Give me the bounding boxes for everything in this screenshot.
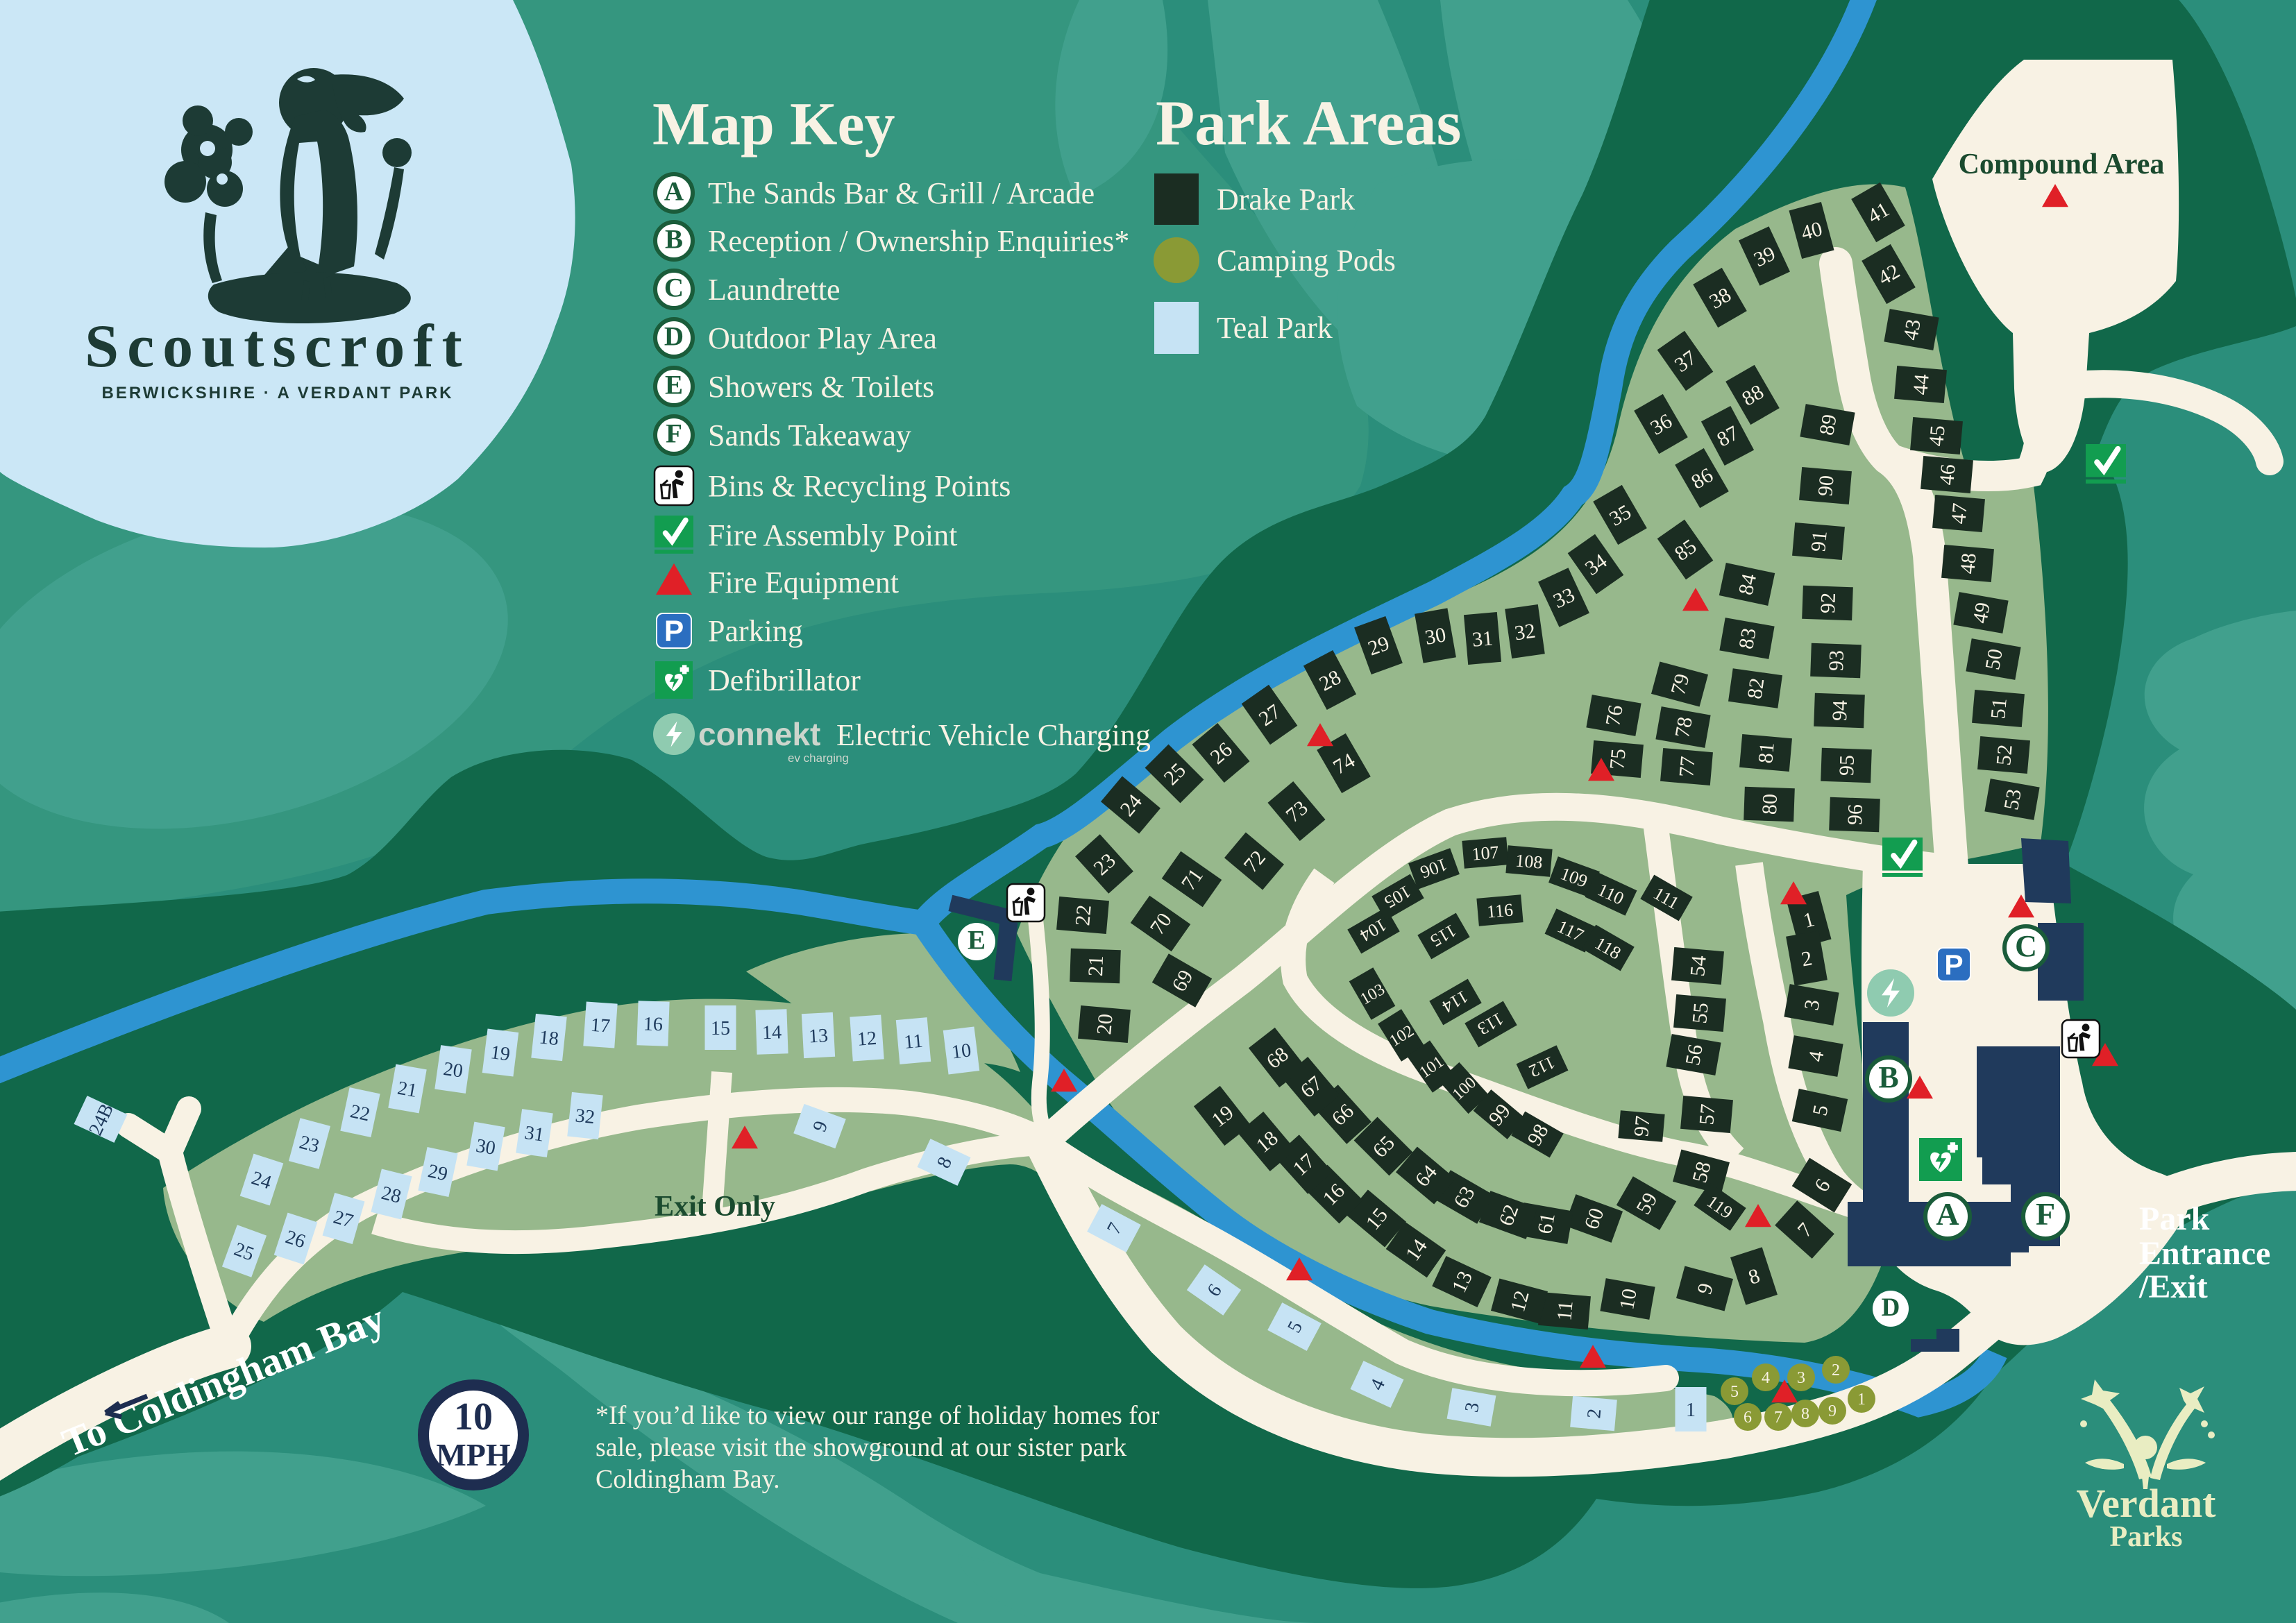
svg-text:46: 46: [1935, 464, 1959, 486]
svg-text:83: 83: [1734, 627, 1761, 651]
svg-text:51: 51: [1986, 697, 2011, 720]
svg-text:connekt: connekt: [698, 716, 820, 752]
svg-text:108: 108: [1514, 850, 1543, 872]
svg-text:5: 5: [1730, 1383, 1739, 1401]
svg-text:116: 116: [1486, 899, 1514, 921]
svg-text:30: 30: [1424, 623, 1448, 649]
svg-text:13: 13: [808, 1025, 829, 1047]
svg-text:11: 11: [1553, 1300, 1577, 1322]
svg-text:92: 92: [1816, 592, 1840, 613]
svg-text:2: 2: [1583, 1408, 1605, 1420]
svg-text:*If you’d like to view our ran: *If you’d like to view our range of holi…: [596, 1401, 1160, 1430]
svg-text:45: 45: [1925, 425, 1949, 448]
svg-text:E: E: [665, 370, 683, 400]
svg-text:32: 32: [574, 1105, 596, 1128]
svg-text:F: F: [2036, 1196, 2055, 1232]
svg-text:80: 80: [1758, 793, 1782, 815]
svg-text:Coldingham Bay.: Coldingham Bay.: [596, 1465, 780, 1494]
svg-text:Defibrillator: Defibrillator: [708, 663, 861, 697]
svg-text:12: 12: [856, 1028, 877, 1051]
svg-text:30: 30: [474, 1135, 497, 1159]
svg-text:Showers & Toilets: Showers & Toilets: [708, 370, 934, 404]
svg-text:91: 91: [1807, 530, 1831, 553]
svg-text:18: 18: [538, 1026, 559, 1050]
svg-text:50: 50: [1981, 647, 2007, 672]
svg-text:2: 2: [1832, 1361, 1840, 1379]
svg-text:10: 10: [454, 1395, 493, 1438]
svg-text:/Exit: /Exit: [2138, 1268, 2208, 1305]
svg-text:9: 9: [1828, 1402, 1837, 1420]
svg-text:20: 20: [1092, 1013, 1117, 1036]
svg-text:The Sands Bar & Grill / Arcade: The Sands Bar & Grill / Arcade: [708, 176, 1095, 210]
svg-text:D: D: [664, 321, 684, 351]
svg-text:48: 48: [1956, 552, 1980, 575]
svg-text:97: 97: [1630, 1115, 1654, 1138]
svg-text:Sands Takeaway: Sands Takeaway: [708, 418, 911, 452]
svg-text:7: 7: [1774, 1409, 1782, 1427]
svg-text:Compound Area: Compound Area: [1959, 148, 2165, 180]
svg-text:107: 107: [1471, 842, 1499, 864]
svg-text:82: 82: [1744, 677, 1769, 700]
svg-text:Scoutscroft: Scoutscroft: [85, 313, 471, 380]
svg-text:Bins & Recycling Points: Bins & Recycling Points: [708, 469, 1011, 503]
svg-text:Parking: Parking: [708, 614, 803, 648]
svg-text:43: 43: [1899, 318, 1925, 342]
svg-text:15: 15: [711, 1018, 730, 1039]
svg-text:Laundrette: Laundrette: [708, 273, 841, 307]
svg-text:89: 89: [1815, 413, 1841, 437]
svg-text:21: 21: [1084, 955, 1108, 976]
svg-text:93: 93: [1825, 649, 1848, 671]
svg-text:1: 1: [1686, 1400, 1696, 1421]
svg-text:75: 75: [1605, 748, 1630, 771]
svg-text:61: 61: [1533, 1212, 1560, 1236]
svg-text:Outdoor Play Area: Outdoor Play Area: [708, 321, 937, 355]
svg-text:77: 77: [1675, 756, 1699, 779]
svg-text:Reception / Ownership Enquirie: Reception / Ownership Enquiries*: [708, 224, 1129, 258]
svg-text:44: 44: [1909, 373, 1933, 396]
svg-text:31: 31: [1471, 627, 1494, 651]
svg-text:Drake Park: Drake Park: [1217, 182, 1355, 216]
svg-text:76: 76: [1601, 704, 1628, 728]
svg-text:94: 94: [1828, 699, 1852, 721]
svg-text:10: 10: [950, 1039, 972, 1063]
svg-text:3: 3: [1797, 1369, 1805, 1387]
svg-text:sale, please visit the showgro: sale, please visit the showground at our…: [596, 1433, 1126, 1462]
svg-text:B: B: [1878, 1060, 1898, 1094]
svg-text:Parks: Parks: [2110, 1521, 2183, 1553]
svg-text:90: 90: [1814, 475, 1838, 498]
svg-text:C: C: [2015, 929, 2037, 963]
svg-text:6: 6: [1744, 1409, 1752, 1427]
svg-text:78: 78: [1671, 715, 1697, 740]
svg-text:57: 57: [1695, 1103, 1719, 1126]
svg-text:MPH: MPH: [436, 1437, 511, 1472]
svg-text:Park: Park: [2139, 1200, 2210, 1237]
svg-text:17: 17: [590, 1014, 611, 1037]
svg-text:ev charging: ev charging: [788, 751, 849, 765]
svg-text:Exit Only: Exit Only: [655, 1191, 775, 1223]
svg-text:31: 31: [523, 1122, 546, 1146]
svg-text:54: 54: [1686, 955, 1710, 978]
svg-text:95: 95: [1835, 754, 1859, 776]
svg-text:Map Key: Map Key: [652, 91, 895, 158]
svg-text:Park Areas: Park Areas: [1156, 87, 1461, 158]
svg-text:52: 52: [1992, 744, 2016, 767]
svg-text:F: F: [666, 418, 682, 448]
svg-text:81: 81: [1754, 742, 1778, 765]
svg-text:16: 16: [643, 1013, 663, 1035]
svg-text:96: 96: [1843, 804, 1867, 825]
svg-text:53: 53: [2000, 788, 2026, 812]
svg-text:A: A: [664, 176, 684, 206]
svg-text:14: 14: [762, 1021, 782, 1044]
svg-text:49: 49: [1968, 601, 1995, 625]
svg-text:11: 11: [903, 1030, 924, 1053]
svg-text:Fire Equipment: Fire Equipment: [708, 566, 899, 600]
svg-text:P: P: [664, 615, 684, 648]
svg-text:Teal Park: Teal Park: [1217, 311, 1333, 345]
svg-text:55: 55: [1688, 1002, 1712, 1025]
svg-text:D: D: [1882, 1293, 1900, 1322]
svg-text:4: 4: [1762, 1369, 1770, 1387]
svg-text:32: 32: [1513, 620, 1537, 645]
svg-text:20: 20: [442, 1058, 464, 1082]
svg-text:10: 10: [1615, 1287, 1641, 1311]
svg-text:8: 8: [1801, 1405, 1809, 1423]
svg-text:B: B: [665, 224, 683, 254]
svg-text:A: A: [1936, 1196, 1959, 1232]
svg-text:Fire Assembly Point: Fire Assembly Point: [708, 518, 957, 552]
svg-text:BERWICKSHIRE · A VERDANT PARK: BERWICKSHIRE · A VERDANT PARK: [101, 384, 453, 402]
svg-text:E: E: [968, 925, 986, 955]
svg-text:47: 47: [1947, 502, 1971, 525]
svg-text:21: 21: [396, 1078, 419, 1102]
svg-text:Electric Vehicle Charging: Electric Vehicle Charging: [836, 718, 1151, 752]
svg-text:22: 22: [1071, 904, 1095, 927]
svg-text:Verdant: Verdant: [2077, 1481, 2217, 1526]
svg-text:56: 56: [1681, 1043, 1707, 1067]
svg-text:19: 19: [489, 1042, 512, 1065]
svg-text:P: P: [1944, 949, 1963, 980]
svg-text:1: 1: [1857, 1391, 1866, 1409]
svg-text:C: C: [664, 273, 684, 303]
svg-text:Camping Pods: Camping Pods: [1217, 244, 1396, 278]
svg-text:Entrance: Entrance: [2139, 1235, 2270, 1272]
